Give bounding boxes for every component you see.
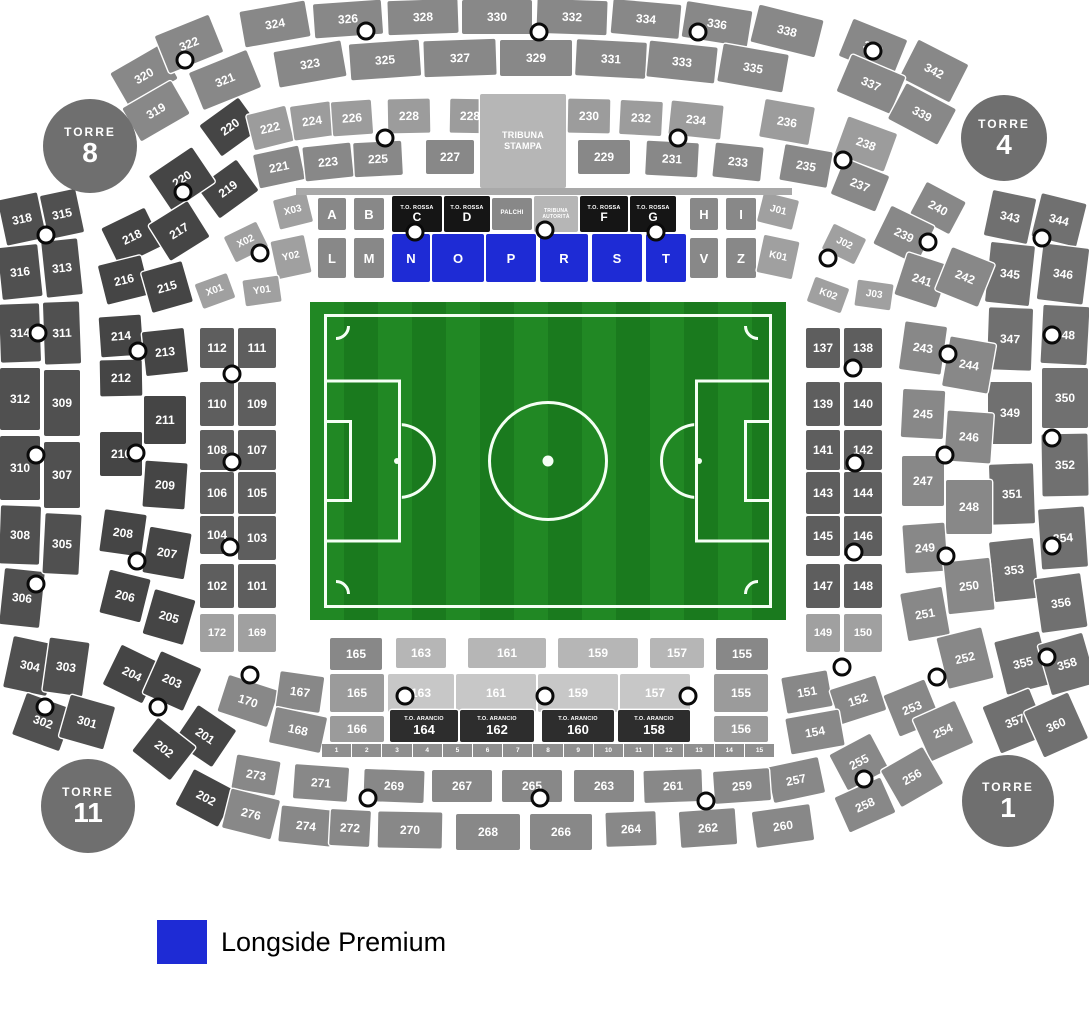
- section-label: 106: [207, 487, 227, 499]
- section-label: 358: [1056, 655, 1079, 672]
- section-266: 266: [530, 814, 592, 850]
- section-label: 239: [892, 225, 915, 245]
- section-label: 152: [847, 691, 870, 709]
- section-label: 144: [853, 487, 873, 499]
- section-label: 140: [853, 398, 873, 410]
- section-r[interactable]: R: [540, 234, 588, 282]
- section-label: S: [613, 252, 622, 265]
- section-264: 264: [605, 811, 656, 847]
- section-156: 156: [714, 716, 768, 742]
- section-label: 319: [144, 101, 167, 121]
- section-label: 203: [160, 671, 183, 690]
- section-161: 161: [456, 674, 536, 712]
- section-259: 259: [713, 768, 771, 804]
- section-label: 346: [1052, 267, 1073, 281]
- gate-dot: [396, 687, 415, 706]
- section-h: H: [690, 198, 718, 230]
- section-label: 148: [853, 580, 873, 592]
- gate-dot: [1043, 429, 1062, 448]
- row-number-1: 1: [322, 744, 351, 757]
- penalty-spot-left: [394, 458, 400, 464]
- section-f: T.O. ROSSAF: [580, 196, 628, 232]
- section-p[interactable]: P: [486, 234, 536, 282]
- section-label: J02: [834, 236, 853, 252]
- section-235: 235: [779, 144, 833, 188]
- section-label: 267: [452, 780, 472, 792]
- section-label: Z: [737, 252, 745, 265]
- section-label: I: [739, 208, 743, 221]
- section-267: 267: [432, 770, 492, 802]
- section-label: 259: [732, 779, 753, 792]
- section-307: 307: [44, 442, 80, 508]
- section-347: 347: [987, 307, 1033, 370]
- section-label: F: [600, 211, 607, 223]
- legend: Longside Premium: [157, 920, 446, 964]
- section-label: 333: [671, 55, 692, 69]
- section-224: 224: [290, 101, 334, 140]
- gate-dot: [1043, 326, 1062, 345]
- section-s[interactable]: S: [592, 234, 642, 282]
- gate-dot: [1033, 229, 1052, 248]
- section-label: 332: [562, 11, 582, 24]
- section-144: 144: [844, 472, 882, 514]
- section-148: 148: [844, 564, 882, 608]
- section-label: 241: [911, 271, 934, 289]
- section-label: 236: [776, 114, 798, 129]
- section-247: 247: [902, 456, 944, 506]
- section-label: 252: [954, 650, 976, 666]
- section-label: 141: [813, 444, 833, 456]
- section-label: Y01: [252, 285, 271, 297]
- section-d: T.O. ROSSAD: [444, 196, 490, 232]
- gate-dot: [855, 770, 874, 789]
- gate-dot: [647, 223, 666, 242]
- section-label: 250: [958, 579, 979, 593]
- section-label: 342: [922, 61, 945, 81]
- goal-area-left: [324, 420, 352, 502]
- section-label: R: [559, 252, 568, 265]
- section-label: 161: [497, 647, 517, 659]
- section-n[interactable]: N: [392, 234, 430, 282]
- section-158: T.O. ARANCIO158: [618, 710, 690, 742]
- section-label: 325: [375, 53, 396, 66]
- section-label: 159: [568, 687, 588, 699]
- legend-label: Longside Premium: [221, 927, 446, 958]
- section-label: 307: [52, 469, 72, 481]
- section-label: 107: [247, 444, 267, 456]
- section-label: 304: [19, 658, 41, 674]
- section-111: 111: [238, 328, 276, 368]
- gate-dot: [697, 792, 716, 811]
- section-343: 343: [984, 190, 1037, 244]
- section-label: 232: [631, 111, 652, 124]
- gate-dot: [29, 324, 48, 343]
- gate-dot: [536, 687, 555, 706]
- section-208: 208: [99, 509, 146, 556]
- section-207: 207: [142, 527, 191, 580]
- section-label: 202: [152, 738, 175, 760]
- section-k02: K02: [807, 277, 850, 314]
- section-227: 227: [426, 140, 474, 174]
- section-103: 103: [238, 516, 276, 560]
- section-label: 228: [460, 110, 480, 122]
- section-label: 233: [727, 155, 748, 169]
- section-345: 345: [985, 242, 1035, 306]
- section-label: 334: [635, 12, 656, 26]
- section-172: 172: [200, 614, 234, 652]
- walkway-bar: [296, 188, 792, 195]
- section-139: 139: [806, 382, 840, 426]
- section-label: 225: [368, 152, 389, 165]
- section-label: 145: [813, 530, 833, 542]
- section-327: 327: [423, 39, 496, 77]
- section-label: 261: [663, 780, 683, 793]
- section-label: K02: [818, 287, 839, 303]
- section-label: 301: [76, 713, 99, 730]
- section-label: 305: [52, 537, 73, 550]
- section-229: 229: [578, 140, 630, 174]
- section-label: 220: [218, 116, 241, 137]
- gate-dot: [357, 22, 376, 41]
- section-label: 272: [340, 821, 361, 834]
- legend-color-swatch: [157, 920, 207, 964]
- section-label: 231: [662, 152, 683, 165]
- section-label: 303: [55, 660, 77, 675]
- section-label: 347: [1000, 333, 1020, 346]
- gate-dot: [928, 668, 947, 687]
- section-251: 251: [900, 587, 950, 642]
- section-147: 147: [806, 564, 840, 608]
- section-label: X01: [205, 283, 225, 298]
- section-label: 165: [347, 687, 367, 699]
- section-label: 230: [579, 110, 599, 122]
- gate-dot: [129, 342, 148, 361]
- section-label: 235: [795, 158, 817, 173]
- section-270: 270: [378, 811, 443, 848]
- section-162: T.O. ARANCIO162: [460, 710, 534, 742]
- section-222: 222: [246, 106, 294, 151]
- section-309: 309: [44, 370, 80, 436]
- section-label: 315: [51, 206, 73, 222]
- section-312: 312: [0, 368, 40, 430]
- section-label: 227: [440, 151, 460, 163]
- section-label: 150: [854, 628, 872, 639]
- section-160: T.O. ARANCIO160: [542, 710, 614, 742]
- section-label: 266: [551, 826, 571, 838]
- tower-number: 11: [73, 799, 103, 827]
- section-label: 201: [193, 725, 216, 746]
- section-label: 112: [207, 342, 226, 354]
- section-260: 260: [752, 804, 814, 848]
- tower-number: 4: [996, 131, 1012, 159]
- section-323: 323: [273, 40, 346, 87]
- section-label: 151: [796, 684, 818, 699]
- gate-dot: [359, 789, 378, 808]
- gate-dot: [536, 221, 555, 240]
- section-label: 166: [347, 723, 367, 735]
- section-label: 155: [731, 687, 751, 699]
- section-141: 141: [806, 430, 840, 470]
- section-label: K01: [768, 250, 788, 264]
- section-label: 224: [301, 114, 323, 129]
- section-label: 103: [247, 532, 267, 544]
- section-151: 151: [781, 670, 833, 713]
- section-label: 355: [1012, 655, 1034, 671]
- section-label: 138: [853, 342, 873, 354]
- section-k01: K01: [756, 235, 799, 280]
- section-o[interactable]: O: [432, 234, 484, 282]
- section-261: 261: [643, 769, 702, 803]
- section-label: 111: [248, 342, 267, 354]
- section-m: M: [354, 238, 384, 278]
- tower-1: TORRE1: [962, 755, 1054, 847]
- section-label: 351: [1002, 488, 1022, 501]
- section-label: 253: [900, 699, 923, 718]
- section-331: 331: [575, 39, 647, 79]
- gate-dot: [406, 223, 425, 242]
- section-311: 311: [43, 301, 81, 364]
- section-213: 213: [142, 328, 188, 376]
- section-label: 202: [194, 788, 217, 808]
- section-label: 352: [1055, 459, 1075, 471]
- section-label: 157: [645, 687, 665, 699]
- section-tribuna-stampa: TRIBUNA STAMPA: [480, 94, 566, 188]
- penalty-spot-right: [696, 458, 702, 464]
- section-label: 240: [926, 198, 949, 218]
- section-label: 211: [155, 414, 174, 426]
- gate-dot: [127, 444, 146, 463]
- section-label: 306: [11, 591, 32, 605]
- section-label: 160: [567, 723, 589, 736]
- section-label: 229: [594, 151, 614, 163]
- section-label: 110: [207, 398, 226, 410]
- section-149: 149: [806, 614, 840, 652]
- section-label: 242: [953, 268, 976, 287]
- gate-dot: [844, 359, 863, 378]
- section-257: 257: [767, 757, 825, 803]
- section-t[interactable]: T: [646, 234, 686, 282]
- section-label: 257: [785, 772, 807, 788]
- section-163: 163: [396, 638, 446, 668]
- section-316: 316: [0, 244, 43, 300]
- section-label: 313: [51, 261, 72, 275]
- section-label: Y02: [281, 250, 300, 263]
- section-169: 169: [238, 614, 276, 652]
- gate-dot: [919, 233, 938, 252]
- section-label: 245: [913, 407, 934, 420]
- row-number-15: 15: [745, 744, 774, 757]
- section-label: 105: [247, 487, 267, 499]
- section-label: 206: [114, 588, 136, 604]
- section-label: 263: [594, 780, 614, 792]
- gate-dot: [864, 42, 883, 61]
- section-x01: X01: [195, 273, 236, 309]
- section-label: 162: [486, 723, 508, 736]
- section-label: 213: [154, 345, 175, 359]
- section-349: 349: [988, 382, 1032, 444]
- section-label: 102: [207, 580, 227, 592]
- section-label: 318: [11, 211, 33, 227]
- section-label: 336: [706, 17, 728, 32]
- section-label: 251: [914, 606, 936, 621]
- section-271: 271: [293, 764, 349, 802]
- section-215: 215: [141, 261, 193, 313]
- section-x03: X03: [273, 192, 313, 229]
- section-j03: J03: [854, 280, 893, 311]
- row-number-10: 10: [594, 744, 623, 757]
- football-pitch: [310, 302, 786, 620]
- section-label: 270: [400, 824, 420, 836]
- section-150: 150: [844, 614, 882, 652]
- section-label: 154: [804, 724, 826, 739]
- section-label: 329: [526, 52, 546, 64]
- gate-dot: [223, 453, 242, 472]
- row-number-4: 4: [413, 744, 442, 757]
- section-165: 165: [330, 674, 384, 712]
- section-label: 165: [346, 648, 366, 660]
- section-label: 216: [113, 272, 135, 288]
- section-label: 309: [52, 397, 72, 409]
- section-225: 225: [353, 141, 403, 177]
- section-268: 268: [456, 814, 520, 850]
- section-label: H: [699, 208, 708, 221]
- section-245: 245: [901, 389, 945, 439]
- section-161: 161: [468, 638, 546, 668]
- gate-dot: [531, 789, 550, 808]
- section-label: 258: [853, 795, 876, 814]
- tower-8: TORRE8: [43, 99, 137, 193]
- section-a: A: [318, 198, 346, 230]
- section-label: 260: [772, 819, 794, 834]
- section-label: 274: [295, 819, 316, 833]
- gate-dot: [36, 698, 55, 717]
- section-159: 159: [558, 638, 638, 668]
- stadium-seat-map: 3203223243263283303323343363383403423193…: [0, 0, 1089, 1032]
- section-label: 255: [847, 752, 870, 772]
- section-label: 321: [213, 71, 236, 90]
- section-z: Z: [726, 238, 756, 278]
- section-label: V: [700, 252, 709, 265]
- gate-dot: [689, 23, 708, 42]
- section-label: 271: [311, 776, 332, 789]
- section-250: 250: [943, 558, 994, 615]
- section-label: 147: [813, 580, 833, 592]
- section-label: 316: [9, 265, 30, 279]
- section-label: 164: [413, 723, 435, 736]
- section-j01: J01: [757, 192, 799, 230]
- section-label: J03: [865, 289, 883, 301]
- section-label: B: [364, 208, 373, 221]
- section-228: 228: [388, 99, 431, 134]
- section-154: 154: [785, 710, 844, 755]
- gate-dot: [223, 365, 242, 384]
- row-number-12: 12: [654, 744, 683, 757]
- section-label: 337: [859, 75, 882, 94]
- section-274: 274: [278, 805, 333, 846]
- gate-dot: [221, 538, 240, 557]
- gate-dot: [679, 687, 698, 706]
- gate-dot: [128, 552, 147, 571]
- section-label: 158: [643, 723, 665, 736]
- section-303: 303: [42, 637, 89, 696]
- section-label: 222: [259, 120, 281, 136]
- row-number-8: 8: [533, 744, 562, 757]
- section-label: 212: [111, 372, 131, 384]
- section-168: 168: [269, 707, 327, 753]
- section-137: 137: [806, 328, 840, 368]
- section-label: 205: [158, 608, 181, 625]
- section-324: 324: [239, 1, 310, 48]
- section-label: 139: [813, 398, 833, 410]
- section-205: 205: [142, 589, 195, 645]
- section-label: 350: [1055, 392, 1075, 404]
- section-label: 344: [1048, 212, 1070, 228]
- section-y02: Y02: [270, 235, 311, 279]
- section-label: 217: [167, 221, 190, 242]
- section-label: 215: [156, 278, 179, 295]
- row-number-9: 9: [564, 744, 593, 757]
- section-276: 276: [222, 789, 280, 840]
- tower-4: TORRE4: [961, 95, 1047, 181]
- section-334: 334: [611, 0, 682, 39]
- section-label: 311: [52, 327, 72, 340]
- section-label: 327: [450, 52, 470, 65]
- section-label: 360: [1044, 715, 1067, 734]
- section-label: 207: [156, 545, 178, 560]
- gate-dot: [669, 129, 688, 148]
- section-label: 161: [486, 687, 506, 699]
- gate-dot: [530, 23, 549, 42]
- section-272: 272: [329, 809, 371, 847]
- section-b: B: [354, 198, 384, 230]
- section-sublabel: TRIBUNA STAMPA: [502, 130, 544, 153]
- gate-dot: [834, 151, 853, 170]
- section-label: 219: [216, 178, 239, 199]
- section-label: 204: [120, 664, 143, 684]
- gate-dot: [376, 129, 395, 148]
- section-167: 167: [276, 671, 325, 713]
- section-164: T.O. ARANCIO164: [390, 710, 458, 742]
- gate-dot: [241, 666, 260, 685]
- section-label: A: [327, 208, 336, 221]
- section-145: 145: [806, 516, 840, 556]
- section-label: P: [507, 252, 516, 265]
- section-label: 157: [667, 647, 687, 659]
- section-label: 167: [289, 685, 311, 700]
- section-y01: Y01: [242, 276, 281, 307]
- section-206: 206: [99, 570, 150, 623]
- row-number-2: 2: [352, 744, 381, 757]
- row-number-6: 6: [473, 744, 502, 757]
- section-label: 243: [912, 341, 934, 356]
- section-label: 221: [268, 159, 290, 175]
- section-209: 209: [142, 461, 187, 510]
- section-305: 305: [42, 513, 81, 575]
- section-308: 308: [0, 505, 41, 564]
- section-236: 236: [759, 99, 815, 145]
- gate-dot: [27, 575, 46, 594]
- section-label: 310: [10, 462, 30, 474]
- section-label: 238: [855, 135, 878, 153]
- section-palchi: PALCHI: [492, 198, 532, 230]
- section-label: 349: [1000, 407, 1020, 419]
- section-350: 350: [1042, 368, 1088, 428]
- section-label: L: [328, 252, 336, 265]
- section-label: N: [406, 252, 415, 265]
- section-label: 169: [248, 628, 266, 639]
- section-label: 269: [384, 780, 404, 793]
- section-label: 223: [317, 155, 338, 169]
